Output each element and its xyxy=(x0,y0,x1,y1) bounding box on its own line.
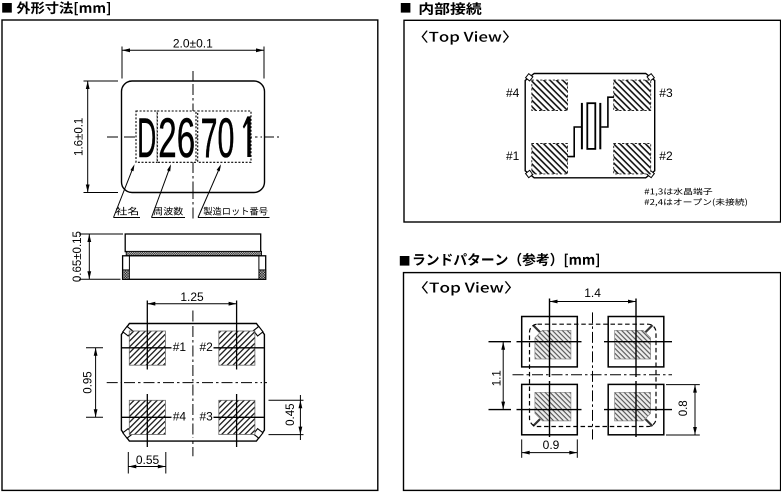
svg-text:0.45: 0.45 xyxy=(285,404,297,426)
svg-text:D: D xyxy=(137,106,156,169)
svg-text:0.65±0.15: 0.65±0.15 xyxy=(72,231,84,282)
svg-text:#2: #2 xyxy=(200,340,214,354)
svg-text:#3: #3 xyxy=(659,86,673,100)
svg-text:#4: #4 xyxy=(506,86,520,100)
svg-text:#2: #2 xyxy=(659,149,673,163)
svg-text:70: 70 xyxy=(201,106,235,169)
svg-text:0.9: 0.9 xyxy=(543,438,560,452)
svg-text:0.8: 0.8 xyxy=(678,400,690,416)
svg-text:2.0±0.1: 2.0±0.1 xyxy=(173,37,213,51)
svg-text:#4: #4 xyxy=(173,410,187,424)
svg-text:1.6±0.1: 1.6±0.1 xyxy=(74,118,86,156)
svg-text:1.1: 1.1 xyxy=(492,370,504,386)
svg-text:1.4: 1.4 xyxy=(584,286,601,300)
svg-text:0.55: 0.55 xyxy=(136,453,160,467)
svg-text:#3: #3 xyxy=(200,410,214,424)
svg-text:26: 26 xyxy=(158,106,195,169)
svg-text:1.25: 1.25 xyxy=(180,290,204,304)
svg-text:0.95: 0.95 xyxy=(83,371,95,393)
svg-text:#1: #1 xyxy=(506,149,520,163)
svg-text:#1: #1 xyxy=(173,340,187,354)
